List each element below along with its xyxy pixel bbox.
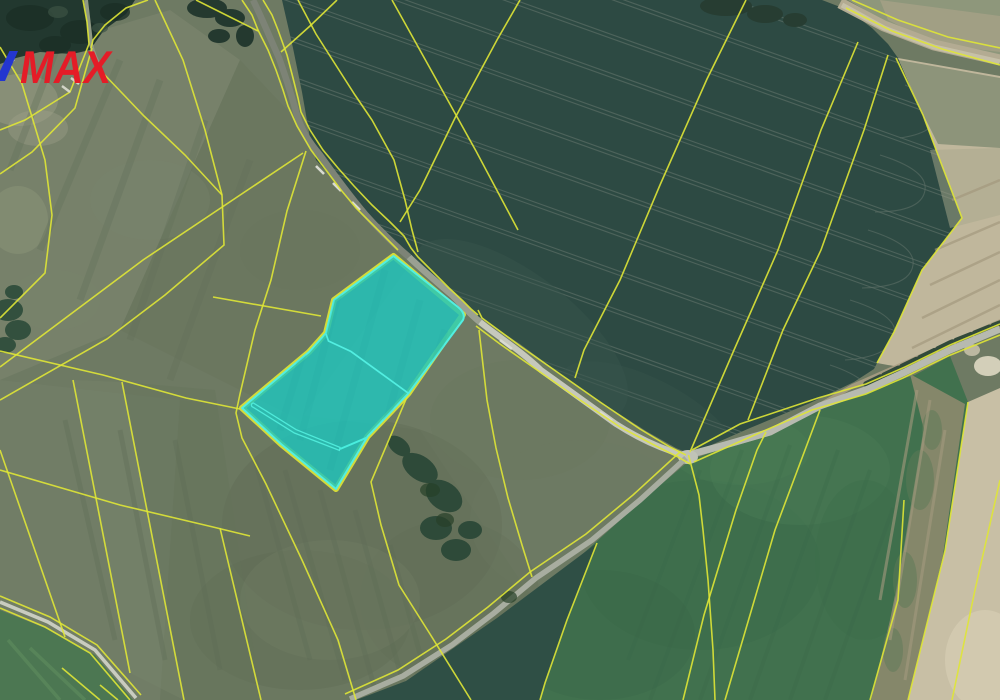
svg-text:MAX: MAX [16, 41, 115, 93]
